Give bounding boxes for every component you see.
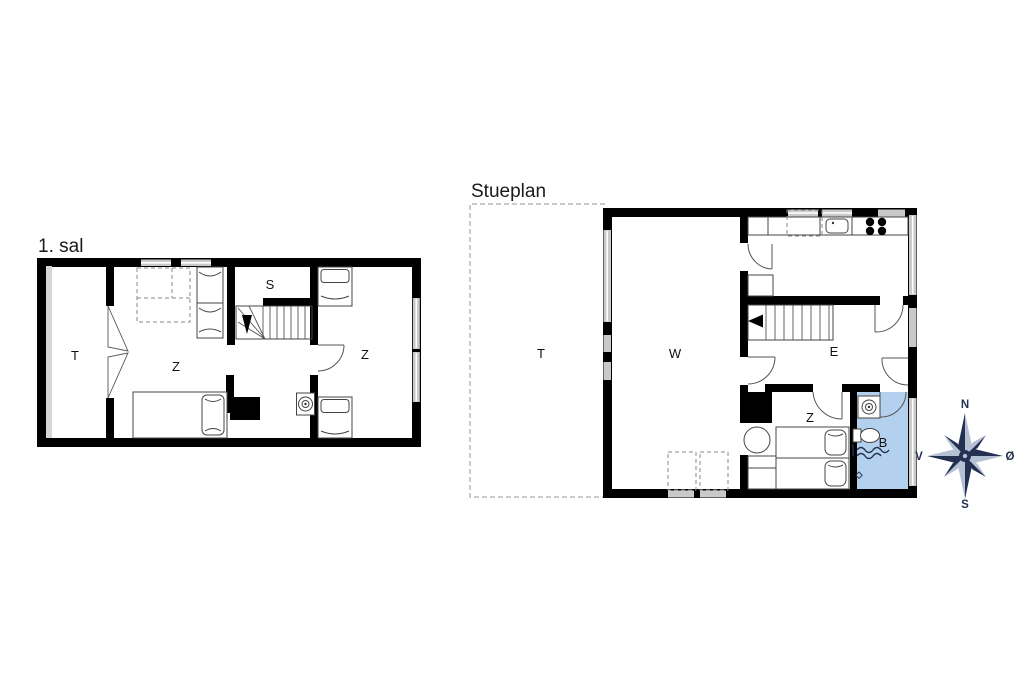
compass-rose: N S V Ø	[915, 399, 1014, 511]
furniture-dashed	[668, 452, 728, 490]
stairs-icon-ground-floor	[748, 305, 833, 340]
cabinet-bedroom	[748, 456, 776, 489]
room-label-e: E	[830, 344, 839, 359]
door-arc-right-bedroom	[318, 345, 344, 371]
chimney-block	[230, 397, 260, 420]
room-label-b: B	[879, 435, 888, 450]
room-label-z-ground: Z	[806, 410, 814, 425]
door-arc-kitchen	[748, 244, 772, 269]
bed-icon-dashed-double	[137, 268, 190, 322]
washbasin-icon-first-floor	[297, 393, 315, 415]
door-arc-living-hall	[748, 357, 775, 384]
first-floor-title: 1. sal	[38, 236, 83, 257]
stairs-down-arrow	[242, 315, 252, 334]
room-label-s: S	[266, 277, 275, 292]
bed-icon-single-bottom	[318, 397, 352, 438]
room-label-z-right: Z	[361, 347, 369, 362]
room-label-t-first: T	[71, 348, 79, 363]
compass-label-north: N	[961, 399, 969, 411]
bed-icon-single-middle	[133, 392, 227, 438]
first-floor-windows	[141, 260, 420, 403]
stairs-up-arrow	[748, 315, 763, 328]
first-floor-plan: 1. sal	[37, 236, 421, 447]
compass-label-west: V	[915, 451, 923, 463]
bed-icon-bunk-ground	[776, 427, 849, 489]
kitchen-sink-icon	[826, 219, 848, 233]
door-arc-entrance	[882, 358, 908, 385]
tall-cabinet	[748, 275, 773, 296]
bed-icon-single-top	[318, 267, 352, 306]
bed-icon-bunk	[197, 267, 223, 338]
wood-stove-icon	[744, 427, 770, 453]
toilet-icon	[853, 429, 880, 443]
stairs-icon-first-floor	[236, 306, 312, 339]
room-label-t-ground: T	[537, 346, 545, 361]
chimney-block-ground	[740, 392, 772, 423]
door-arc-bedroom	[813, 392, 842, 419]
door-arc-kitchen-hall	[875, 305, 903, 332]
ground-floor-plan: Stueplan	[470, 181, 917, 498]
compass-label-south: S	[961, 499, 969, 511]
fold-opening-icon	[108, 306, 128, 398]
floorplan-canvas: 1. sal	[0, 0, 1024, 682]
room-label-z-middle: Z	[172, 359, 180, 374]
washing-machine-icon	[858, 396, 880, 418]
floorplan-page: 1. sal	[0, 0, 1024, 682]
room-label-w: W	[669, 346, 682, 361]
compass-label-east: Ø	[1006, 451, 1015, 463]
sloped-ceiling-band	[46, 266, 52, 438]
ground-floor-title: Stueplan	[471, 181, 546, 202]
